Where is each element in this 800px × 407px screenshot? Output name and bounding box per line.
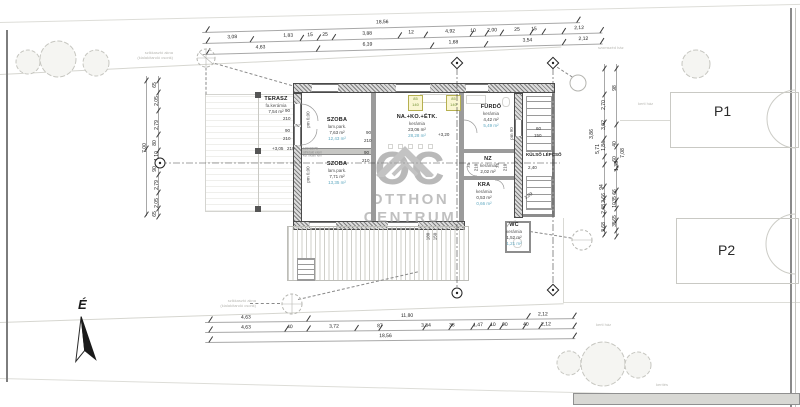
dim-label: 2,00	[487, 27, 497, 33]
window-dim: 180	[425, 233, 430, 241]
room-area-alt: 28,28 m²	[390, 133, 444, 139]
leader-dashed	[206, 68, 207, 95]
door-dim: 210	[364, 138, 372, 143]
p1-plot-outline	[670, 92, 799, 148]
terrace-post	[255, 206, 261, 212]
window-dim: 150	[534, 133, 542, 138]
dim-label: 18,56	[379, 333, 392, 339]
external-stair-upper	[526, 96, 552, 152]
door-dim: 90	[285, 128, 290, 133]
dim-label: 11,80	[401, 313, 413, 319]
dim-label: 98	[612, 85, 618, 91]
door-dim: 210	[283, 116, 291, 121]
shaft-note: szikkasztó akna (kialakítandó csonk)	[131, 50, 173, 60]
dim-label: 94	[599, 184, 605, 190]
dim-label: 3,54	[522, 37, 532, 43]
leader-dashed	[250, 303, 280, 304]
dim-label: 2,05	[154, 96, 160, 106]
east-boundary-wall	[790, 8, 792, 407]
door-dim: 90	[366, 130, 371, 135]
neighbor-building-band	[573, 393, 800, 405]
dim-label: 3,86	[589, 129, 595, 139]
dim-label: 12	[408, 29, 414, 35]
plot-line	[563, 218, 564, 303]
room-area-alt: 0,66 m²	[464, 201, 504, 207]
room-area-alt: 1,21 m²	[496, 241, 532, 247]
room-area-alt: 13,35 m²	[315, 180, 359, 186]
dim-chain-left: 65 2,05 2,79 80 1,10 90 2,79 2,05 65 7,0…	[140, 74, 172, 219]
door-dim: 210	[287, 146, 295, 151]
window-dim: 60	[536, 126, 541, 131]
dim-label: 65	[152, 82, 158, 88]
window	[396, 84, 430, 92]
room-szoba-1: SZOBA lam.park. 7,63 m² 12,43 m²	[315, 117, 359, 142]
dim-label: 2,79	[154, 120, 160, 130]
deck-stairs	[297, 258, 315, 281]
dim-label: 4,63	[241, 325, 251, 331]
shaft-note-line: (kialakítandó csonk)	[131, 55, 173, 60]
room-furdo: FÜRDŐ kerámia 4,42 m² 5,49 m²	[469, 104, 513, 129]
chair	[418, 144, 423, 149]
door-opening	[294, 127, 301, 145]
neighbor-note: kerti ház	[596, 322, 611, 327]
dim-label: 25	[322, 32, 328, 38]
north-label: É	[78, 297, 87, 312]
window-dim: 85	[451, 96, 455, 101]
dim-label: 2,48	[601, 204, 607, 214]
dim-label: 2,12	[538, 311, 548, 317]
room-name: TERASZ	[256, 96, 296, 103]
room-name: SZOBA	[315, 161, 359, 168]
dim-label: 7,00	[142, 143, 148, 153]
dim-label: 1,35	[614, 161, 620, 171]
room-kamra: KRA kerámia 0,53 m² 0,66 m²	[464, 182, 504, 207]
door-dim: 75	[466, 163, 471, 168]
door-dim: 75	[495, 163, 500, 168]
boundary-line	[563, 302, 800, 303]
room-area-alt: 12,43 m²	[315, 136, 359, 142]
wall-stair-south	[523, 214, 555, 217]
dim-label: 2,66	[601, 193, 607, 203]
dim-label: 10	[612, 202, 618, 208]
door-dim: 210	[473, 164, 478, 172]
dim-label: 1,84	[601, 141, 607, 151]
dim-label: 80	[152, 140, 158, 146]
dim-label: 90	[502, 322, 508, 328]
dim-label: 1,10	[154, 151, 160, 161]
lintel-note-line: két oldalt fém	[303, 154, 322, 158]
dim-label: 2,12	[578, 36, 588, 42]
dim-label: 2,05	[154, 198, 160, 208]
leader-dashed	[215, 63, 292, 86]
room-wc: WC kerámia 1,52 m² 1,21 m²	[496, 222, 532, 247]
chair	[398, 144, 403, 149]
dim-label: 87	[377, 323, 383, 329]
terrace-post	[255, 148, 261, 154]
west-boundary-wall	[6, 30, 8, 382]
room-name: FÜRDŐ	[469, 104, 513, 111]
watermark-line1: OTTHON	[345, 191, 475, 209]
window-dim: 140	[412, 102, 419, 107]
dim-line	[202, 33, 602, 44]
wall-interior	[371, 93, 376, 221]
dim-label: 4,63	[256, 44, 266, 50]
dim-label: 90	[152, 166, 158, 172]
dim-label: 10	[470, 28, 476, 34]
level-mark: +3,05	[272, 146, 283, 151]
window	[312, 84, 338, 92]
marked-window: 85 140	[408, 95, 423, 111]
leader-dashed	[553, 64, 573, 77]
door-dim: 210	[362, 158, 370, 163]
dim-label: 15	[531, 26, 537, 32]
dim-label: 66	[612, 189, 618, 195]
dim-label: 40	[523, 322, 529, 328]
dim-label: 2,70	[601, 100, 607, 110]
bathtub	[466, 95, 486, 104]
room-nappali: NA.+KO.+ÉTK. kerámia 23,06 m² 28,28 m²	[390, 114, 444, 139]
p2-label: P2	[718, 242, 735, 258]
dim-label: 4,63	[241, 315, 251, 321]
dim-label: 1,47	[473, 322, 483, 328]
dim-line	[202, 22, 580, 33]
wall-east-inner	[514, 93, 523, 218]
dim-label: 3,34	[421, 323, 431, 329]
stair-width-dim: 2,40	[528, 165, 537, 170]
parapet-mark: pm 90	[509, 127, 514, 140]
north-arrow	[71, 316, 95, 362]
window-dim: 140	[450, 102, 457, 107]
dim-label: 4,92	[445, 28, 455, 34]
dim-label: 3,72	[329, 324, 339, 330]
dim-label: 6,39	[363, 42, 373, 48]
external-stair-label: KÜLSŐ LÉPCSŐ	[526, 152, 562, 157]
dim-label: 25	[514, 27, 520, 33]
dim-label: 1,83	[283, 33, 293, 39]
dim-label: 35	[612, 221, 618, 227]
window-dim: 150	[432, 233, 437, 241]
wall-interior	[464, 176, 514, 180]
lintel-note: 100*150*5 áthidaló elem két oldalt fém	[303, 147, 322, 158]
dim-label: 2,12	[541, 321, 551, 327]
door-dim: 90	[364, 150, 369, 155]
dim-label: 2,68	[601, 222, 607, 232]
p2-plot-outline	[676, 218, 799, 284]
east-boundary-line	[795, 8, 796, 407]
window	[466, 84, 488, 92]
chair	[388, 144, 393, 149]
window-dim: 85	[413, 96, 417, 101]
leader-dashed	[530, 231, 572, 239]
door-dim: 90	[285, 108, 290, 113]
dim-label: 18,56	[376, 19, 389, 25]
dim-label: 40	[287, 324, 293, 330]
parapet-mark: pm 0,00	[306, 166, 311, 182]
dim-chain-right: 98 2,70 3,02 3,86 5,71 1,84 40 7,08 60 1…	[586, 60, 632, 240]
room-name: SZOBA	[315, 117, 359, 124]
room-szoba-2: SZOBA lam.park. 7,71 m² 13,35 m²	[315, 161, 359, 186]
door-dim: 210	[283, 136, 291, 141]
wall-interior	[464, 149, 514, 153]
dim-label: 10	[490, 322, 496, 328]
fence-note: kerítés	[656, 382, 668, 387]
room-name: WC	[496, 222, 532, 229]
marked-window: 85 140	[446, 95, 461, 111]
dim-label: 15	[307, 32, 313, 38]
door-opening	[515, 120, 522, 136]
room-name: KRA	[464, 182, 504, 189]
p1-label: P1	[714, 103, 731, 119]
dim-label: 65	[152, 211, 158, 217]
dim-label: 3,02	[601, 120, 607, 130]
chair	[408, 144, 413, 149]
dim-label: 2,79	[154, 180, 160, 190]
dim-label: 7,08	[620, 148, 626, 158]
dim-chain-top: 18,56 3,08 1,83 15 25 3,88 12 4,92 10 2,…	[202, 14, 603, 60]
room-area-alt: 5,49 m²	[469, 123, 513, 129]
dim-chain-bottom: 4,63 11,80 2,12 4,63 40 3,72 87 3,34 38 …	[205, 312, 585, 348]
room-name: NA.+KO.+ÉTK.	[390, 114, 444, 121]
site-plan-drawing: P1 P2 szomszéd ház kerti ház kerti ház k…	[0, 0, 800, 407]
dim-line	[205, 318, 575, 323]
chair	[428, 144, 433, 149]
dim-label: 3,08	[227, 34, 237, 40]
door-dim: 210	[502, 164, 507, 172]
parapet-mark: pm 0,00	[306, 111, 311, 127]
level-mark: +3,20	[438, 132, 449, 137]
dim-label: 40	[612, 141, 618, 147]
dim-label: 2,12	[574, 25, 584, 31]
dim-label: 3,88	[362, 31, 372, 37]
neighbor-note: kerti ház	[638, 101, 653, 106]
room-name: NZ	[468, 156, 508, 163]
dim-label: 38	[449, 322, 455, 328]
dim-label: 1,68	[448, 39, 458, 45]
